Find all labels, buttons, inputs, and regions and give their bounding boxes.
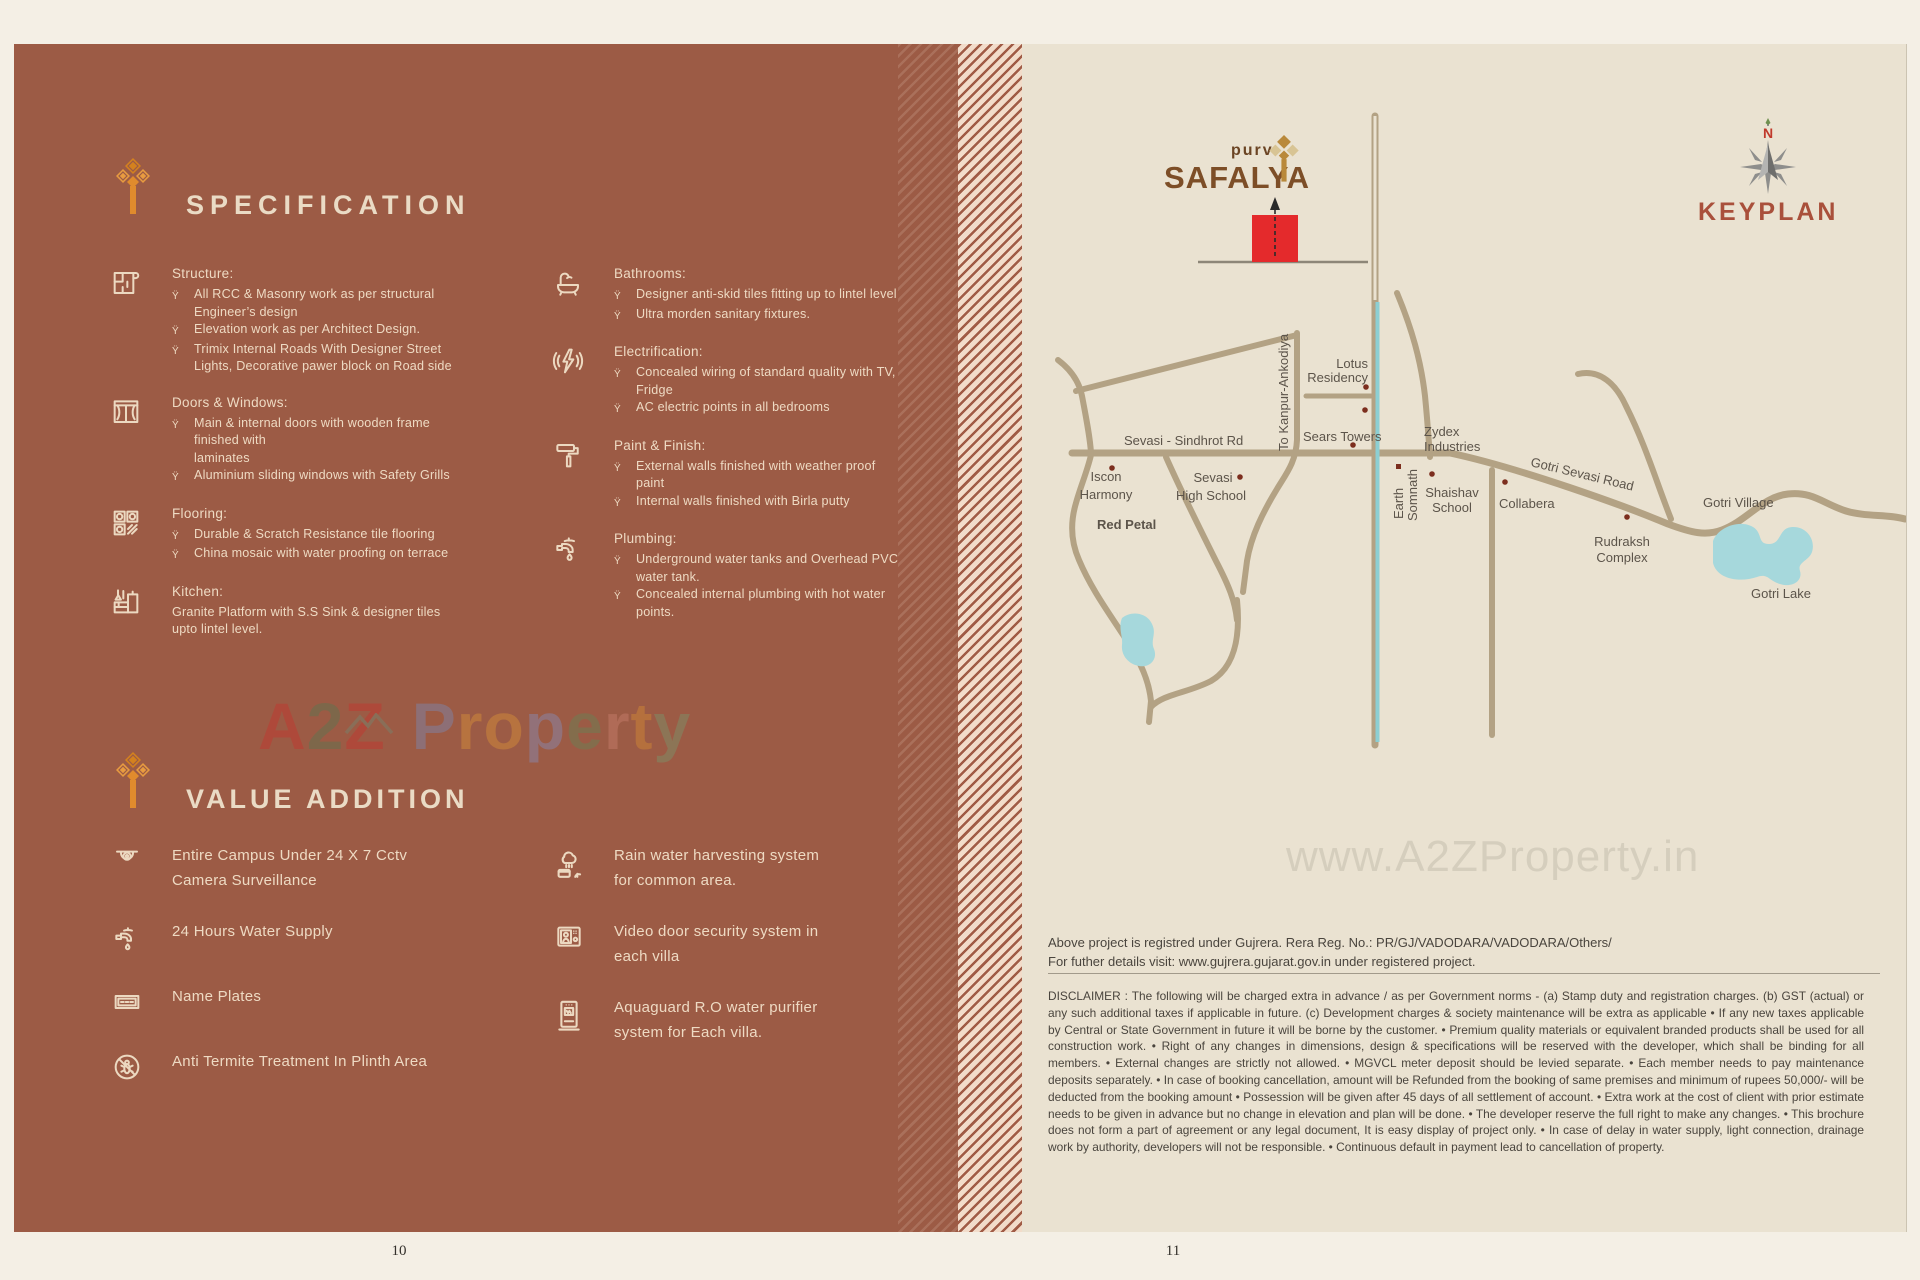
value-addition-header: VALUE ADDITION (110, 750, 469, 817)
label-sevasi-high-school-2: High School (1176, 488, 1246, 503)
spec-bullet: ŸUnderground water tanks and Overhead PV… (614, 551, 898, 586)
divider-line (1048, 973, 1880, 974)
spec-group-electrification: Electrification: ŸConcealed wiring of st… (552, 344, 898, 419)
tiles-icon (110, 506, 144, 565)
spec-bullet: ŸConcealed wiring of standard quality wi… (614, 364, 896, 399)
spec-group-paint: Paint & Finish: ŸExternal walls finished… (552, 438, 898, 513)
spec-bullet: ŸConcealed internal plumbing with hot wa… (614, 586, 898, 621)
spec-title: Plumbing: (614, 531, 898, 546)
spec-group-flooring: Flooring: ŸDurable & Scratch Resistance … (110, 506, 520, 565)
value-column-left: Entire Campus Under 24 X 7 Cctv Camera S… (110, 843, 520, 1114)
rain-water-icon (552, 843, 586, 893)
page-number-left: 10 (379, 1243, 419, 1260)
value-item-video-door: Video door security system in each villa (552, 919, 819, 969)
spec-bullet: ŸAluminium sliding windows with Safety G… (172, 467, 450, 487)
spec-group-kitchen: Kitchen: Granite Platform with S.S Sink … (110, 584, 520, 639)
gotri-lake-shape (1713, 524, 1813, 585)
name-plate-icon (110, 984, 144, 1023)
spec-bullet: ŸExternal walls finished with weather pr… (614, 458, 875, 493)
value-item-water-supply: 24 Hours Water Supply (110, 919, 520, 958)
label-iscon-harmony-2: Harmony (1080, 487, 1133, 502)
spec-bullet: ŸElevation work as per Architect Design. (172, 321, 452, 341)
label-red-petal: Red Petal (1097, 517, 1156, 532)
rera-registration-text: Above project is registred under Gujrera… (1048, 933, 1612, 971)
value-addition-list: Entire Campus Under 24 X 7 Cctv Camera S… (110, 843, 819, 1114)
value-item-rain-water: Rain water harvesting system for common … (552, 843, 819, 893)
floor-plan-icon (110, 266, 144, 376)
label-lotus-residency-2: Residency (1307, 370, 1368, 385)
marker-arrowhead (1270, 197, 1280, 210)
label-zydex-industries-2: Industries (1424, 439, 1481, 454)
spec-title: Paint & Finish: (614, 438, 875, 453)
spec-bullet: ŸMain & internal doors with wooden frame… (172, 415, 450, 468)
spec-bullet: ŸDesigner anti-skid tiles fitting up to … (614, 286, 897, 306)
tap-icon (552, 531, 586, 621)
value-column-right: Rain water harvesting system for common … (552, 843, 819, 1114)
spec-group-structure: Structure: ŸAll RCC & Masonry work as pe… (110, 266, 520, 376)
label-to-kanpur-ankodiya: To Kanpur-Ankodiya (1276, 333, 1291, 451)
page-number-right: 11 (1153, 1243, 1193, 1260)
spec-bullet: ŸAC electric points in all bedrooms (614, 399, 896, 419)
label-shaishav-school: Shaishav (1425, 485, 1479, 500)
keyplan-map: Lotus Residency Sears Towers Sevasi - Si… (1022, 110, 1906, 850)
spec-bullet: ŸTrimix Internal Roads With Designer Str… (172, 341, 452, 376)
spec-bullet: ŸChina mosaic with water proofing on ter… (172, 545, 448, 565)
label-zydex-industries: Zydex (1424, 424, 1460, 439)
brochure-spread: SPECIFICATION Structure: ŸAll RCC & Maso… (0, 0, 1920, 1280)
specification-header: SPECIFICATION (110, 156, 471, 223)
label-sears-towers: Sears Towers (1303, 429, 1382, 444)
label-lotus-residency: Lotus (1336, 356, 1368, 371)
a2zproperty-url-watermark: www.A2ZProperty.in (1286, 832, 1699, 882)
label-iscon-harmony: Iscon (1090, 469, 1121, 484)
label-gotri-lake: Gotri Lake (1751, 586, 1811, 601)
road-gotri-sevasi (1450, 453, 1905, 533)
value-item-cctv: Entire Campus Under 24 X 7 Cctv Camera S… (110, 843, 520, 893)
right-page: purv SAFALYA N (1022, 44, 1907, 1232)
spec-bullet: ŸUltra morden sanitary fixtures. (614, 306, 897, 326)
left-page: SPECIFICATION Structure: ŸAll RCC & Maso… (14, 44, 958, 1232)
label-rudraksh-complex: Rudraksh (1594, 534, 1650, 549)
spec-group-plumbing: Plumbing: ŸUnderground water tanks and O… (552, 531, 898, 621)
pond-shape (1120, 613, 1155, 666)
label-rudraksh-complex-2: Complex (1596, 550, 1648, 565)
water-purifier-icon (552, 995, 586, 1045)
label-earth: Earth (1391, 488, 1406, 519)
window-icon (110, 395, 144, 487)
spec-group-bathrooms: Bathrooms: ŸDesigner anti-skid tiles fit… (552, 266, 898, 325)
spec-column-left: Structure: ŸAll RCC & Masonry work as pe… (110, 266, 520, 658)
value-item-anti-termite: Anti Termite Treatment In Plinth Area (110, 1049, 520, 1088)
spec-title: Kitchen: (172, 584, 440, 599)
spec-title: Doors & Windows: (172, 395, 450, 410)
label-somnath: Somnath (1405, 469, 1420, 521)
spec-bullet: ŸAll RCC & Masonry work as per structura… (172, 286, 452, 321)
page-edge-stripes (958, 44, 1022, 1232)
value-item-name-plates: Name Plates (110, 984, 520, 1023)
electricity-icon (552, 344, 586, 419)
value-item-water-purifier: Aquaguard R.O water purifier system for … (552, 995, 819, 1045)
spec-bullet: ŸInternal walls finished with Birla putt… (614, 493, 875, 513)
spec-column-right: Bathrooms: ŸDesigner anti-skid tiles fit… (552, 266, 898, 658)
label-collabera: Collabera (1499, 496, 1555, 511)
kitchen-icon (110, 584, 144, 639)
disclaimer-text: DISCLAIMER : The following will be charg… (1048, 988, 1864, 1156)
watermark-roof-icon (344, 674, 400, 750)
bathtub-icon (552, 266, 586, 325)
spec-title: Flooring: (172, 506, 448, 521)
paint-roller-icon (552, 438, 586, 513)
spec-title: Bathrooms: (614, 266, 897, 281)
rera-line-1: Above project is registred under Gujrera… (1048, 933, 1612, 952)
label-gotri-sevasi-road: Gotri Sevasi Road (1529, 454, 1635, 493)
tree-logo-icon (110, 750, 156, 817)
spec-title: Structure: (172, 266, 452, 281)
spec-note: Granite Platform with S.S Sink & designe… (172, 604, 440, 639)
video-door-icon (552, 919, 586, 969)
rera-line-2: For futher details visit: www.gujrera.gu… (1048, 952, 1612, 971)
label-gotri-village: Gotri Village (1703, 495, 1774, 510)
tree-logo-icon (110, 156, 156, 223)
spec-group-doors-windows: Doors & Windows: ŸMain & internal doors … (110, 395, 520, 487)
label-sevasi-high-school: Sevasi (1193, 470, 1232, 485)
specification-title: SPECIFICATION (186, 192, 471, 223)
value-addition-title: VALUE ADDITION (186, 786, 469, 817)
cctv-camera-icon (110, 843, 144, 893)
specification-list: Structure: ŸAll RCC & Masonry work as pe… (110, 266, 898, 658)
termite-icon (110, 1049, 144, 1088)
label-sevasi-sindhrot-rd: Sevasi - Sindhrot Rd (1124, 433, 1243, 448)
spec-bullet: ŸDurable & Scratch Resistance tile floor… (172, 526, 448, 546)
label-shaishav-school-2: School (1432, 500, 1472, 515)
spec-title: Electrification: (614, 344, 896, 359)
water-tap-icon (110, 919, 144, 958)
